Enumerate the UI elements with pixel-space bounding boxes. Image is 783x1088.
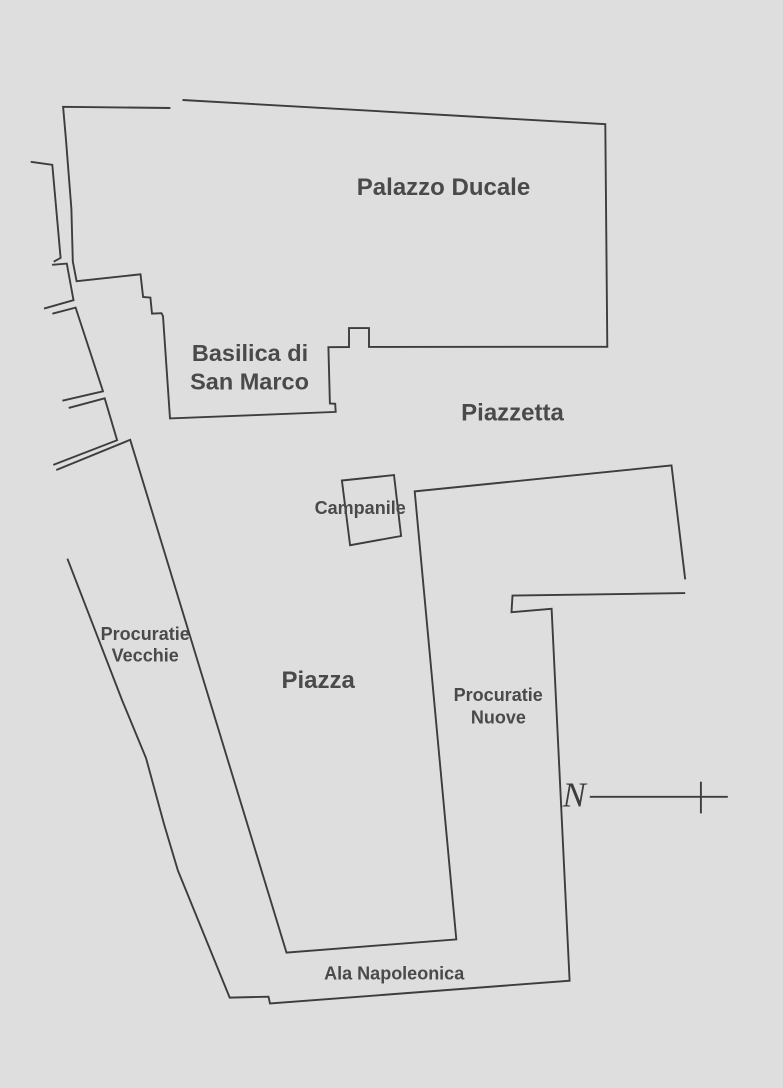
svg-text:Piazzetta: Piazzetta	[461, 399, 564, 426]
svg-text:Palazzo Ducale: Palazzo Ducale	[357, 174, 530, 201]
svg-text:San Marco: San Marco	[190, 369, 309, 395]
svg-text:Procuratie: Procuratie	[454, 685, 543, 705]
svg-text:Ala Napoleonica: Ala Napoleonica	[324, 963, 465, 983]
svg-text:Nuove: Nuove	[471, 708, 526, 728]
svg-text:Campanile: Campanile	[315, 498, 406, 518]
svg-text:Basilica di: Basilica di	[192, 340, 308, 366]
svg-text:N: N	[562, 776, 588, 815]
svg-text:Procuratie: Procuratie	[101, 624, 190, 644]
svg-text:Piazza: Piazza	[282, 667, 356, 694]
svg-text:Vecchie: Vecchie	[112, 646, 179, 666]
